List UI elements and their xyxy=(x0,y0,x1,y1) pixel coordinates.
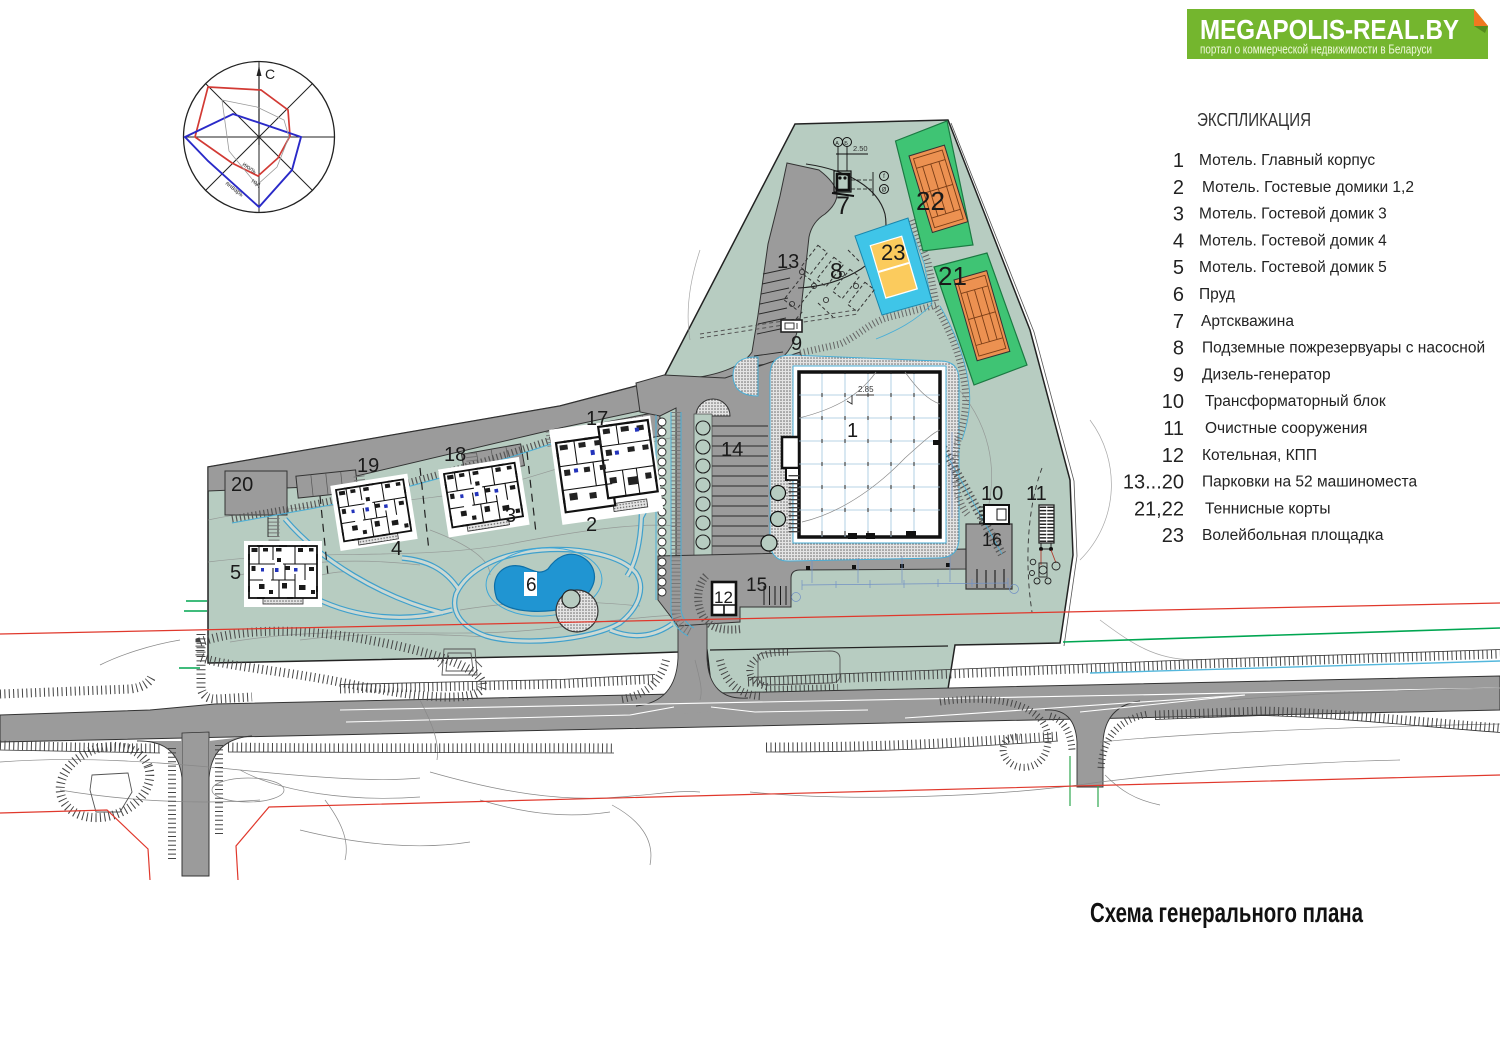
svg-text:17: 17 xyxy=(586,408,608,430)
svg-text:Мотель. Гостевой домик 5: Мотель. Гостевой домик 5 xyxy=(1199,259,1387,276)
svg-text:2: 2 xyxy=(1173,177,1184,199)
svg-text:23: 23 xyxy=(1162,525,1184,547)
svg-text:Парковки на 52 машиноместа: Парковки на 52 машиноместа xyxy=(1202,474,1417,491)
svg-text:Б: Б xyxy=(844,141,848,147)
svg-text:14: 14 xyxy=(721,439,743,461)
svg-text:Мотель. Гостевые домики 1,2: Мотель. Гостевые домики 1,2 xyxy=(1202,179,1414,196)
svg-text:8: 8 xyxy=(830,258,843,284)
svg-text:5: 5 xyxy=(230,562,241,584)
svg-text:Ø: Ø xyxy=(882,188,887,194)
svg-text:13...20: 13...20 xyxy=(1123,472,1184,494)
svg-text:С: С xyxy=(265,66,275,82)
svg-text:Артскважина: Артскважина xyxy=(1201,313,1294,330)
svg-text:22: 22 xyxy=(916,186,945,216)
svg-text:1: 1 xyxy=(847,420,858,442)
svg-text:Дизель-генератор: Дизель-генератор xyxy=(1202,366,1331,383)
svg-text:год: год xyxy=(250,178,262,189)
svg-text:2: 2 xyxy=(586,514,597,536)
svg-text:16: 16 xyxy=(982,530,1002,550)
svg-text:15: 15 xyxy=(746,575,767,596)
svg-text:1: 1 xyxy=(1173,150,1184,172)
svg-text:Волейбольная площадка: Волейбольная площадка xyxy=(1202,527,1384,544)
svg-text:Теннисные корты: Теннисные корты xyxy=(1205,500,1330,517)
svg-text:7: 7 xyxy=(1173,311,1184,333)
svg-text:18: 18 xyxy=(444,444,466,466)
svg-text:6: 6 xyxy=(1173,284,1184,306)
svg-text:А: А xyxy=(835,141,839,147)
svg-text:Мотель. Главный корпус: Мотель. Главный корпус xyxy=(1199,152,1375,169)
svg-text:5: 5 xyxy=(1173,257,1184,279)
svg-text:4: 4 xyxy=(1173,230,1184,252)
svg-text:10: 10 xyxy=(981,483,1003,505)
svg-text:Котельная, КПП: Котельная, КПП xyxy=(1202,447,1317,464)
svg-text:ЭКСПЛИКАЦИЯ: ЭКСПЛИКАЦИЯ xyxy=(1197,110,1311,130)
svg-text:13: 13 xyxy=(777,251,799,273)
svg-text:3: 3 xyxy=(1173,204,1184,226)
svg-text:Пруд: Пруд xyxy=(1199,286,1235,303)
svg-text:MEGAPOLIS-REAL.BY: MEGAPOLIS-REAL.BY xyxy=(1200,14,1459,45)
svg-text:19: 19 xyxy=(357,455,379,477)
svg-text:8: 8 xyxy=(1173,338,1184,360)
svg-text:7: 7 xyxy=(836,192,850,220)
svg-text:портал о коммерческой недвижим: портал о коммерческой недвижимости в Бел… xyxy=(1200,43,1432,57)
svg-text:21,22: 21,22 xyxy=(1134,498,1184,520)
svg-text:3: 3 xyxy=(505,505,516,527)
svg-text:9: 9 xyxy=(791,333,802,355)
svg-text:Очистные сооружения: Очистные сооружения xyxy=(1205,420,1367,437)
svg-text:4: 4 xyxy=(391,538,402,560)
svg-text:июль: июль xyxy=(241,161,258,176)
svg-text:23: 23 xyxy=(881,240,905,265)
svg-text:10: 10 xyxy=(1162,391,1184,413)
svg-text:Трансформаторный блок: Трансформаторный блок xyxy=(1205,393,1386,410)
svg-text:12: 12 xyxy=(714,588,733,607)
svg-text:Мотель. Гостевой домик 4: Мотель. Гостевой домик 4 xyxy=(1199,232,1387,249)
svg-text:11: 11 xyxy=(1163,418,1184,440)
svg-text:21: 21 xyxy=(938,261,967,291)
svg-text:2.85: 2.85 xyxy=(858,385,874,394)
svg-text:6: 6 xyxy=(526,575,537,596)
svg-text:9: 9 xyxy=(1173,364,1184,386)
svg-text:12: 12 xyxy=(1162,445,1184,467)
svg-text:Мотель. Гостевой домик 3: Мотель. Гостевой домик 3 xyxy=(1199,206,1387,223)
svg-text:Подземные пожрезервуары с насо: Подземные пожрезервуары с насосной xyxy=(1202,340,1485,357)
svg-text:Схема генерального плана: Схема генерального плана xyxy=(1090,897,1363,928)
svg-text:2.50: 2.50 xyxy=(853,144,868,153)
svg-text:20: 20 xyxy=(231,474,253,496)
svg-text:январь: январь xyxy=(224,180,245,199)
